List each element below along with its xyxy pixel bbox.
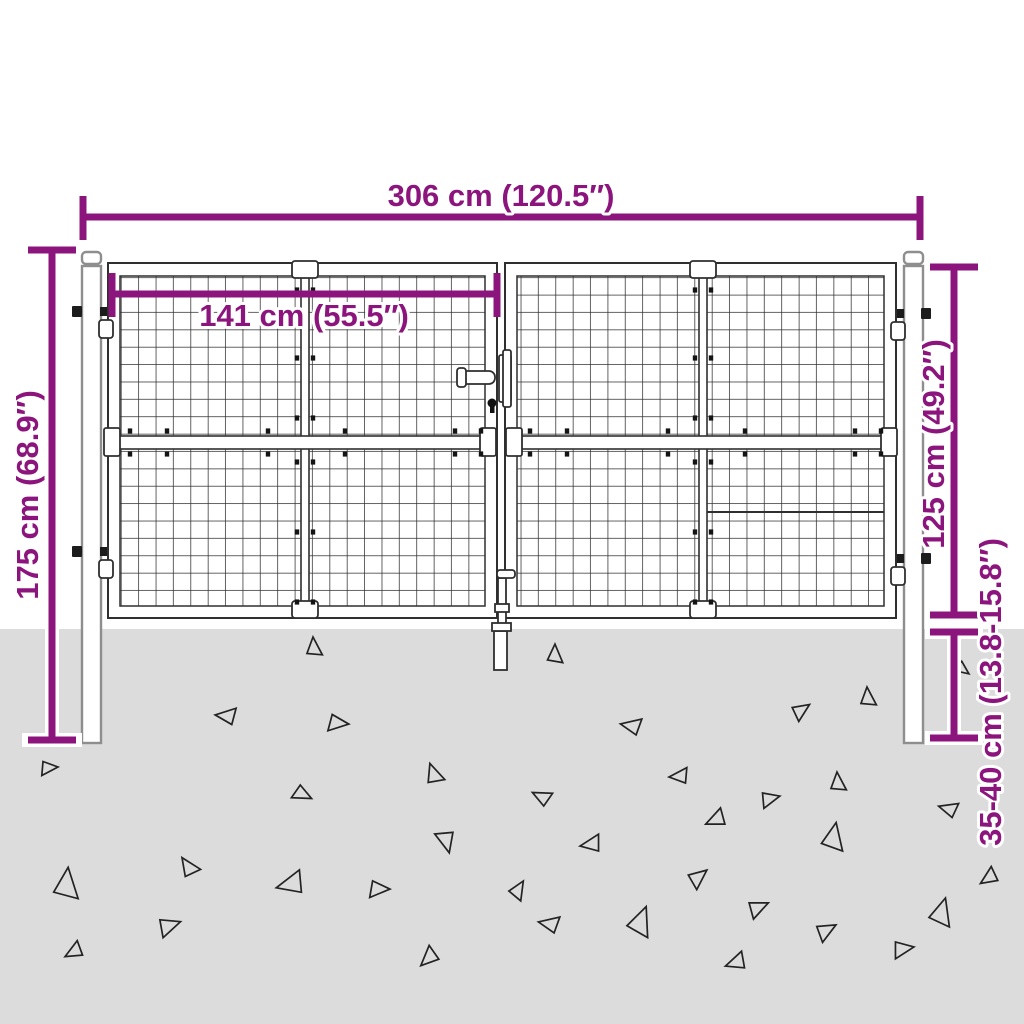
leaf-width-label: 141 cm (55.5″) [199,298,409,333]
gate-height-label: 125 cm (49.2″) [916,339,951,549]
ground [0,629,1024,1024]
lock-keeper [503,350,511,407]
ground-depth-label: 35-40 cm (13.8-15.8″) [973,538,1008,846]
post-height-label: 175 cm (68.9″) [10,390,45,600]
right-leaf-mid-rail [507,436,894,449]
overall-width-label: 306 cm (120.5″) [388,178,615,213]
product-diagram: 306 cm (120.5″) 141 cm (55.5″) 175 cm (6… [0,0,1024,1024]
left-leaf-top-bracket [292,261,318,278]
dimension-overall-width: 306 cm (120.5″) [83,178,920,240]
right-gate-leaf [505,261,897,618]
gate-diagram-svg: 306 cm (120.5″) 141 cm (55.5″) 175 cm (6… [0,0,1024,1024]
left-leaf-mid-rail [110,436,495,449]
right-leaf-top-bracket [690,261,716,278]
